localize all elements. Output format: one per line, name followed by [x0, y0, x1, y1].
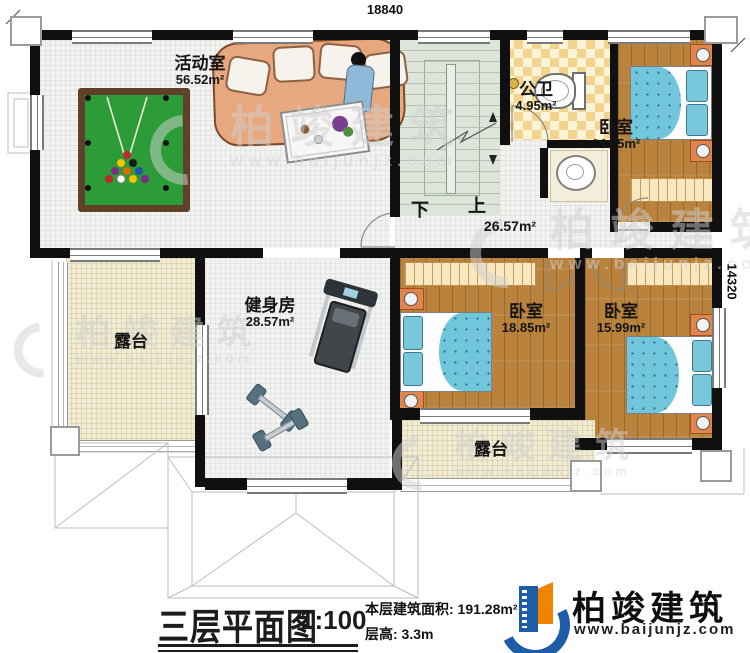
room-label-gym: 健身房 28.57m² — [225, 296, 315, 330]
window — [608, 30, 690, 44]
bed-pillow — [692, 340, 712, 372]
wall — [563, 30, 608, 40]
wall — [624, 248, 722, 258]
bed-pillow — [686, 104, 708, 136]
bed-pillow — [403, 352, 423, 386]
wall — [390, 40, 400, 217]
wall — [540, 148, 548, 198]
wall — [30, 40, 40, 95]
bed-pillow — [686, 70, 708, 102]
window — [418, 30, 490, 44]
window — [527, 30, 563, 44]
wall — [390, 258, 400, 408]
wall — [160, 248, 263, 258]
window — [420, 408, 530, 424]
room-label-bathroom: 公卫 4.95m² — [498, 80, 574, 114]
window — [233, 30, 313, 44]
wall — [712, 388, 722, 450]
wall — [575, 438, 607, 450]
brand-url: www.baijunjz.com — [574, 621, 735, 638]
window — [72, 30, 152, 44]
brand-logo-icon — [500, 580, 564, 646]
room-label-terrace-left: 露台 — [95, 332, 167, 351]
logo-building-blue — [519, 586, 538, 632]
dimension-top: 18840 — [340, 2, 430, 17]
wall — [30, 248, 70, 258]
floor-height-text: 层高: 3.3m — [365, 624, 433, 644]
wall — [390, 248, 548, 258]
wall — [530, 408, 585, 420]
pillar-post — [700, 450, 732, 482]
room-label-bedroom3: 卧室 15.99m² — [578, 302, 664, 336]
title-underline — [158, 650, 358, 652]
window — [195, 325, 209, 415]
wall — [712, 248, 722, 308]
wall — [30, 150, 40, 255]
wall — [313, 30, 418, 40]
title-underline — [158, 644, 358, 647]
window — [247, 478, 347, 494]
pillar-post — [570, 460, 602, 492]
stairs-down-label: 下 — [411, 196, 429, 222]
floor-plan-canvas: 柏竣建筑 www.baijunjz.com 柏竣建筑 www.baijunjz.… — [0, 0, 750, 653]
room-label-terrace-bottom: 露台 — [455, 440, 527, 459]
room-label-bedroom2: 卧室 18.85m² — [483, 302, 569, 336]
wall — [152, 30, 233, 40]
plan-scale: 1:100 — [300, 605, 367, 636]
window — [712, 308, 726, 388]
stairs-up-label: 上 — [468, 192, 486, 218]
room-label-bedroom1: 卧室 14.65m² — [575, 118, 657, 152]
pillar-post — [10, 16, 42, 46]
pillar-post — [50, 426, 80, 456]
wall — [205, 478, 247, 490]
room-label-activity: 活动室 56.52m² — [145, 54, 255, 88]
logo-building-orange — [536, 582, 553, 624]
bed-pillow — [692, 374, 712, 406]
wall — [650, 222, 712, 232]
window — [30, 95, 44, 150]
wall — [490, 30, 527, 40]
wall — [195, 415, 205, 487]
wall — [195, 253, 205, 325]
hall-area-label: 26.57m² — [470, 219, 550, 235]
wall — [390, 408, 420, 420]
wall — [392, 420, 402, 483]
wall — [580, 248, 592, 258]
floor-area-text: 本层建筑面积: 191.28m² — [365, 599, 517, 619]
pillar-post — [704, 16, 738, 44]
window — [70, 248, 160, 262]
bed-pillow — [403, 316, 423, 350]
dimension-right: 14320 — [725, 252, 740, 312]
window — [607, 438, 692, 454]
wall — [712, 30, 722, 232]
plan-title: 三层平面图 — [158, 597, 318, 650]
